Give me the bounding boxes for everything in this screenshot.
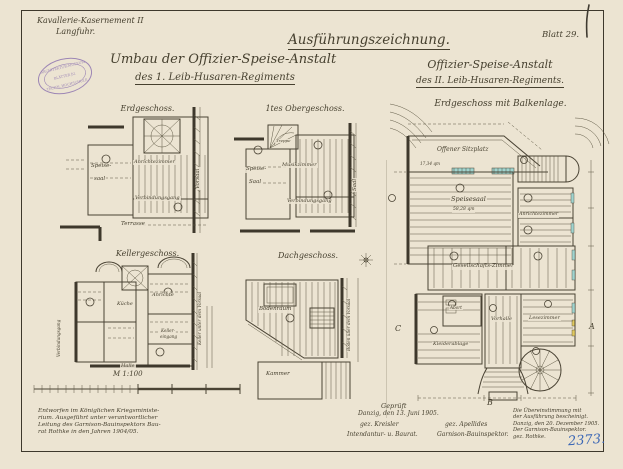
scale-label: M 1:100	[113, 370, 143, 378]
spiral-stair-keller	[122, 266, 148, 290]
room-label-og-musikzimmer: Musikzimmer	[281, 163, 318, 168]
room-label-bl-vorhalle: Vorhalle	[490, 317, 513, 322]
window-marker	[572, 330, 575, 336]
corner-ink-mark	[580, 2, 596, 40]
room-label-dg-boden-ueber-vorsaal: Boden über dem Vorsaal	[347, 298, 351, 352]
room-label-dg-bodenraum: Bodenraum	[258, 307, 292, 313]
room-label-bl-speisesaal: Speisesaal	[450, 196, 487, 203]
window-marker	[492, 168, 514, 174]
room-label-kg-halle: Halle	[120, 364, 136, 369]
window-marker	[572, 270, 575, 280]
room-label-kg-kellereingang2: eingang	[159, 335, 178, 339]
window-marker	[572, 303, 575, 313]
room-label-bl-gesellschaftszimmer: Gesellschafts-Zimmer	[452, 264, 515, 270]
kellergeschoss-plan-drawing	[60, 248, 235, 385]
right-subtitle-text: des II. Leib-Husaren-Regiments.	[416, 76, 564, 88]
room-label-og-verbindungsgang: Verbindungsgang	[286, 199, 333, 204]
right-title-top: Ausführungszeichnung.	[288, 32, 433, 50]
spiral-stair-erdgeschoss	[144, 119, 180, 153]
room-label-bl-abort: Abort	[449, 306, 463, 310]
inventory-number: 2373.	[568, 432, 606, 450]
approval-geprueft: Geprüft	[381, 402, 407, 410]
room-label-kg-kellereingang1: Keller-	[160, 329, 176, 333]
main-subtitle-text: des 1. Leib-Husaren-Regiments	[135, 72, 295, 85]
balkenlage-plan-drawing	[388, 98, 610, 413]
section-letter-c: C	[395, 324, 401, 333]
room-label-bl-anrichtezimmer: Anrichtezimmer	[518, 213, 559, 218]
approval-title-left: Intendantur- u. Baurat.	[347, 431, 418, 438]
right-title-line1: Offizier-Speise-Anstalt	[415, 58, 565, 71]
stamp-line2: BLÄTTER JG.	[53, 70, 76, 80]
design-note: Entworfen im Königlichen Kriegsministe- …	[38, 408, 161, 436]
certification-line2: der Ausführung bescheinigt.	[513, 414, 599, 420]
room-label-eg-vorsaal: Vorsaal	[196, 167, 202, 190]
approval-sig-right: gez. Apellides	[445, 421, 487, 428]
room-label-eg-speise1: Speise-	[90, 164, 112, 170]
blatt-number: Blatt 29.	[542, 30, 579, 40]
design-note-line2: rium. Ausgeführt unter verantwortlicher	[38, 415, 161, 422]
approval-date: Danzig, den 13. Juni 1905.	[358, 410, 439, 417]
scale-bar	[28, 381, 246, 397]
approval-sig-left: gez. Kreisler	[360, 421, 399, 428]
room-label-eg-verbindungsgang: Verbindungsgang	[134, 196, 181, 201]
window-marker	[452, 168, 474, 174]
compass-icon	[359, 253, 373, 267]
right-title-line2: des II. Leib-Husaren-Regiments.	[415, 76, 565, 88]
erdgeschoss-plan-drawing	[60, 103, 235, 245]
room-label-kg-keller-unter-vorsaal: Keller unter dem Vorsaal	[198, 291, 202, 346]
design-note-line3: Leitung des Garnison-Bauinspektors Bau-	[38, 422, 161, 429]
window-marker	[572, 250, 575, 260]
obergeschoss-plan-drawing	[230, 105, 380, 248]
room-label-bl-lesezimmer: Lesezimmer	[528, 316, 561, 321]
location-line1: Kavallerie-Kasernement II	[37, 16, 144, 25]
room-label-dg-kammer: Kammer	[265, 372, 291, 378]
room-label-bl-sitzplatz-area: 17,34 qm	[419, 162, 441, 166]
section-letter-a: A	[589, 322, 595, 331]
room-label-kg-anrichte: Anrichte	[151, 293, 175, 298]
stair-dachgeschoss	[310, 308, 334, 328]
stamp-line1: ARCHITEKTUR-MUSEUM	[39, 60, 86, 75]
entrance-steps	[478, 368, 528, 400]
room-label-eg-anrichtezimmer: Anrichtezimmer	[133, 160, 176, 165]
stamp-line3: TECHN. HOCHSCHULE	[46, 78, 88, 92]
main-title-line2: des 1. Leib-Husaren-Regiments	[110, 72, 320, 85]
museum-stamp: ARCHITEKTUR-MUSEUM BLÄTTER JG. TECHN. HO…	[34, 53, 96, 99]
ausfuehrungszeichnung-text: Ausführungszeichnung.	[288, 32, 450, 50]
room-label-kg-verbindungsgang: Verbindungsgang	[57, 319, 61, 358]
room-label-eg-speise2: saal	[93, 177, 106, 183]
window-marker	[571, 193, 574, 203]
right-title-text: Offizier-Speise-Anstalt	[427, 58, 552, 71]
room-label-bl-speisesaal-area: 58,28 qm	[452, 208, 475, 213]
section-letter-b: B	[487, 398, 493, 407]
sheet-crease-line	[386, 160, 387, 418]
location-line2: Langfuhr.	[56, 27, 95, 36]
room-label-og-speise2: Saal	[248, 180, 262, 186]
approval-title-right: Garnison-Bauinspektor.	[437, 431, 508, 438]
stair-obergeschoss	[268, 125, 298, 149]
window-marker	[571, 223, 574, 233]
room-label-kg-kueche: Küche	[116, 302, 134, 307]
main-title-text: Umbau der Offizier-Speise-Anstalt	[110, 52, 336, 67]
room-label-og-saal: Saal	[353, 178, 359, 192]
drawing-sheet: Kavallerie-Kasernement II Langfuhr. ARCH…	[0, 0, 623, 469]
design-note-line4: rat Rothke in den Jahren 1904/05.	[38, 429, 161, 436]
dachgeschoss-plan-drawing	[238, 250, 378, 400]
room-label-og-speise1: Speise-	[245, 167, 267, 173]
room-label-eg-terrasse: Terrasse	[120, 222, 146, 228]
main-title-line1: Umbau der Offizier-Speise-Anstalt	[110, 52, 320, 67]
room-label-og-treppe: Treppe	[275, 139, 291, 143]
room-label-bl-kleiderablage: Kleiderablage	[432, 342, 469, 347]
room-label-bl-offener-sitzplatz: Offener Sitzplatz	[436, 147, 489, 153]
design-note-line1: Entworfen im Königlichen Kriegsministe-	[38, 408, 161, 415]
